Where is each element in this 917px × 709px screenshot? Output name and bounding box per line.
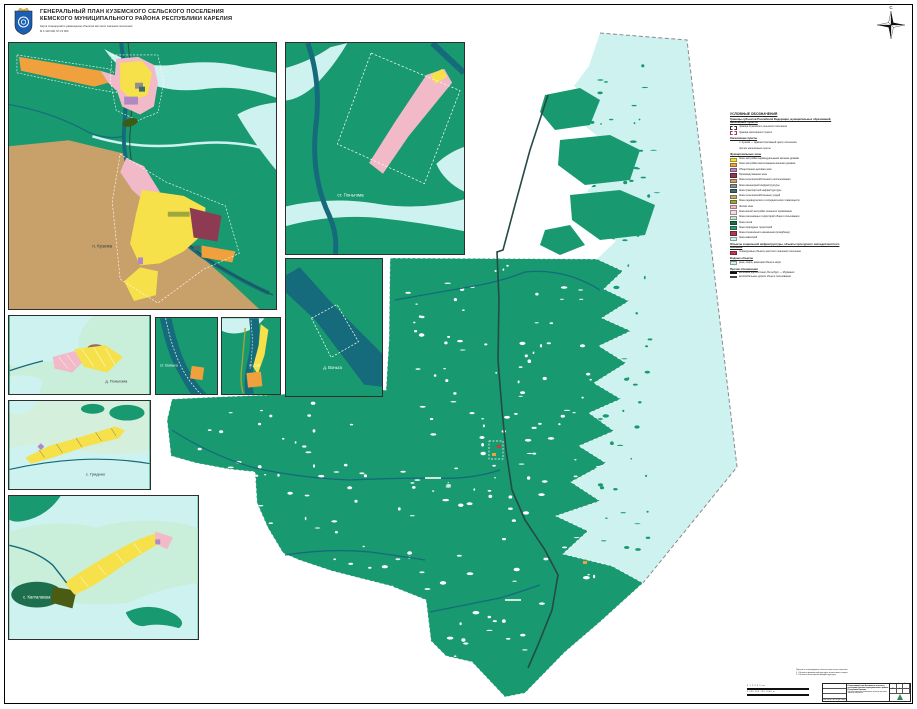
legend-swatch <box>730 158 737 162</box>
legend-entry-label: граница Куземского сельского поселения <box>739 126 787 129</box>
legend-section: Границы субъектов Российской Федерации, … <box>730 118 842 135</box>
legend-entry: Общественно-деловая зона <box>730 168 842 172</box>
scale-bar <box>747 694 809 696</box>
legend-section: Населённые пунктып. Кузема — администрат… <box>730 137 842 151</box>
legend-swatch <box>730 200 737 204</box>
legend-entry: Зона застройки малоэтажными жилыми домам… <box>730 163 842 167</box>
legend-swatch <box>730 261 737 265</box>
legend-section-title: Объекты социальной инфраструктуры, объек… <box>730 243 842 249</box>
legend-swatch <box>730 168 737 172</box>
settlement-dot <box>583 561 587 564</box>
inset-gridino-map: с. Гридино <box>8 400 151 490</box>
stage-value: ГП <box>890 689 897 693</box>
title-block-sheet-info: Стадия Лист Листов ГП 3 5 <box>890 684 910 701</box>
legend-swatch <box>730 272 737 274</box>
legend-swatch <box>730 237 737 241</box>
legend-entry: граница Куземского сельского поселения <box>730 126 842 130</box>
legend-entry-label: Зона лесов <box>739 222 752 225</box>
legend-section: Объекты социальной инфраструктуры, объек… <box>730 243 842 255</box>
legend-title: УСЛОВНЫЕ ОБОЗНАЧЕНИЯ <box>730 112 842 116</box>
legend-entry-label: Зона сельскохозяйственного использования <box>739 179 791 182</box>
legend-section: Прочие обозначенияжелезная дорога Санкт-… <box>730 268 842 279</box>
legend-entry: прочие населённые пункты <box>730 147 842 151</box>
legend-entry: реки, озёра, акватория Белого моря <box>730 261 842 265</box>
legend-swatch <box>730 221 737 225</box>
scale-bars: 0 1 2 3 4 5 км 0 250 500 750 1000 м <box>747 685 809 698</box>
legend-entry-label: Зона садоводческих и огороднических това… <box>739 200 800 203</box>
legend-swatch <box>730 226 737 230</box>
settlement-dot-kuzema <box>497 445 501 448</box>
north-arrow-icon <box>877 11 905 39</box>
legend-entry-label: Зона озеленённых территорий общего польз… <box>739 216 799 219</box>
legend-entry: п. Кузема — административный центр посел… <box>730 142 842 146</box>
legend-entry-label: п. Кузема — административный центр посел… <box>739 142 797 145</box>
legend-swatch <box>730 184 737 188</box>
legend-section: Водные объектыреки, озёра, акватория Бел… <box>730 257 842 265</box>
inset-label: с. Гридино <box>86 471 106 476</box>
legend-entry: Зона сельскохозяйственного использования <box>730 179 842 183</box>
legend-swatch <box>730 251 737 255</box>
legend-section-title: Границы субъектов Российской Федерации, … <box>730 118 842 124</box>
legend-entry-label: Зона застройки малоэтажными жилыми домам… <box>739 163 795 166</box>
legend-swatch <box>730 216 737 220</box>
inset-label: ст. Воньга <box>160 363 179 368</box>
planned-objects-notes: Перечень планируемых объектов местного з… <box>796 669 866 677</box>
legend-swatch <box>730 173 737 177</box>
legend-swatch <box>730 231 737 235</box>
legend-entry-label: граница населённого пункта <box>739 132 772 135</box>
legend-entry: Зона озеленённых территорий общего польз… <box>730 216 842 220</box>
legend-entry: Зона застройки индивидуальными жилыми до… <box>730 158 842 162</box>
project-name: Генеральный план Куземского сельского по… <box>848 685 889 691</box>
inset-pongoma-village-map: д. Поньгома <box>8 315 151 395</box>
organization-logo <box>890 694 910 701</box>
legend-entry: Зона специального назначения (кладбища) <box>730 231 842 235</box>
inset-kuzema-map: п. Кузема <box>8 42 277 310</box>
scale-bar <box>747 688 809 690</box>
legend-entry-label: реки, озёра, акватория Белого моря <box>739 262 781 265</box>
settlement-dot <box>492 453 496 456</box>
sheet-number: 3 <box>897 689 904 693</box>
inset-vonga-map: д. Воньга <box>285 258 383 397</box>
legend-swatch <box>730 195 737 199</box>
legend-entry: граница населённого пункта <box>730 131 842 135</box>
legend-entry-label: Жилая зона <box>739 206 753 209</box>
legend-entry: Зона сельскохозяйственных угодий <box>730 195 842 199</box>
legend-sections: Границы субъектов Российской Федерации, … <box>730 118 842 279</box>
legend-swatch <box>730 205 737 209</box>
legend-entry-label: Зона природных территорий <box>739 227 772 230</box>
legend-swatch <box>730 126 737 130</box>
legend-section-title: Функциональные зоны <box>730 153 842 156</box>
legend-entry-label: Зона застройки индивидуальными жилыми до… <box>739 158 799 161</box>
stage-label: Стадия <box>890 684 897 688</box>
legend-entry: Зона акваторий <box>730 237 842 241</box>
inset-sig-station-map: ст. Сиг <box>221 317 281 395</box>
sheet-name: Карта планируемого размещения объектов м… <box>848 692 889 696</box>
legend-entry-label: Общественно-деловая зона <box>739 169 772 172</box>
legend-entry-label: Зона специального назначения (кладбища) <box>739 232 790 235</box>
map-sheet: ГЕНЕРАЛЬНЫЙ ПЛАН КУЗЕМСКОГО СЕЛЬСКОГО ПО… <box>0 0 917 709</box>
station-zone <box>246 372 262 388</box>
legend-entry-label: автомобильные дороги общего пользования <box>739 276 791 279</box>
inset-label: ст. Поньгома <box>337 192 364 197</box>
legend-panel: УСЛОВНЫЕ ОБОЗНАЧЕНИЯ Границы субъектов Р… <box>730 112 842 280</box>
legend-section-title: Населённые пункты <box>730 137 842 140</box>
legend-entry: Зона жилой застройки сезонного проживани… <box>730 210 842 214</box>
legend-section-title: Водные объекты <box>730 257 842 260</box>
legend-entry: Зона инженерной инфраструктуры <box>730 184 842 188</box>
legend-entry: Зона садоводческих и огороднических това… <box>730 200 842 204</box>
legend-entry-label: Производственная зона <box>739 174 767 177</box>
compass-rose: С <box>872 4 910 46</box>
sheets-total: 5 <box>903 689 910 693</box>
legend-swatch <box>730 163 737 167</box>
legend-entry-label: Зона транспортной инфраструктуры <box>739 190 781 193</box>
legend-entry-label: Зона жилой застройки сезонного проживани… <box>739 211 792 214</box>
legend-entry: Зона транспортной инфраструктуры <box>730 189 842 193</box>
legend-entry: Зона природных территорий <box>730 226 842 230</box>
inset-label: с. Калгалакша <box>23 595 51 600</box>
inset-kalgalaksha-map: с. Калгалакша <box>8 495 199 640</box>
legend-entry-label: прочие населённые пункты <box>739 148 771 151</box>
legend-swatch <box>730 189 737 193</box>
legend-entry-label: планируемые объекты местного значения по… <box>739 251 801 254</box>
inset-label: п. Кузема <box>92 243 112 248</box>
legend-entry: автомобильные дороги общего пользования <box>730 276 842 279</box>
inset-label: д. Воньга <box>323 365 342 370</box>
legend-entry: Жилая зона <box>730 205 842 209</box>
sheets-label: Листов <box>903 684 910 688</box>
legend-entry-label: Зона акваторий <box>739 237 757 240</box>
legend-swatch <box>730 179 737 183</box>
legend-entry: Производственная зона <box>730 173 842 177</box>
legend-section: Функциональные зоныЗона застройки индиви… <box>730 153 842 241</box>
sheet-label: Лист <box>897 684 904 688</box>
legend-swatch <box>730 131 737 135</box>
note-line: 2. Объекты инженерной инфраструктуры <box>796 674 866 677</box>
inset-label: д. Поньгома <box>105 378 128 383</box>
legend-entry-label: Зона сельскохозяйственных угодий <box>739 195 780 198</box>
inset-label: ст. Сиг <box>249 364 261 368</box>
title-block-project: Генеральный план Куземского сельского по… <box>847 684 890 701</box>
inset-vonga-station-map: ст. Воньга <box>155 317 218 395</box>
north-label: С <box>889 5 893 10</box>
legend-entry: планируемые объекты местного значения по… <box>730 251 842 255</box>
legend-entry: Зона лесов <box>730 221 842 225</box>
inset-pongoma-station-map: ст. Поньгома <box>285 42 465 255</box>
tree-logo-icon <box>897 694 903 700</box>
station-zone <box>190 366 204 380</box>
title-block: Изм. Кол.уч. Лист № док. Подп. Дата Гене… <box>822 683 911 702</box>
legend-swatch <box>730 276 737 278</box>
revision-column-headers: Изм. Кол.уч. Лист № док. Подп. Дата <box>823 699 846 701</box>
legend-swatch <box>730 210 737 214</box>
title-block-revision-grid: Изм. Кол.уч. Лист № док. Подп. Дата <box>823 684 847 701</box>
legend-entry-label: Зона инженерной инфраструктуры <box>739 185 780 188</box>
